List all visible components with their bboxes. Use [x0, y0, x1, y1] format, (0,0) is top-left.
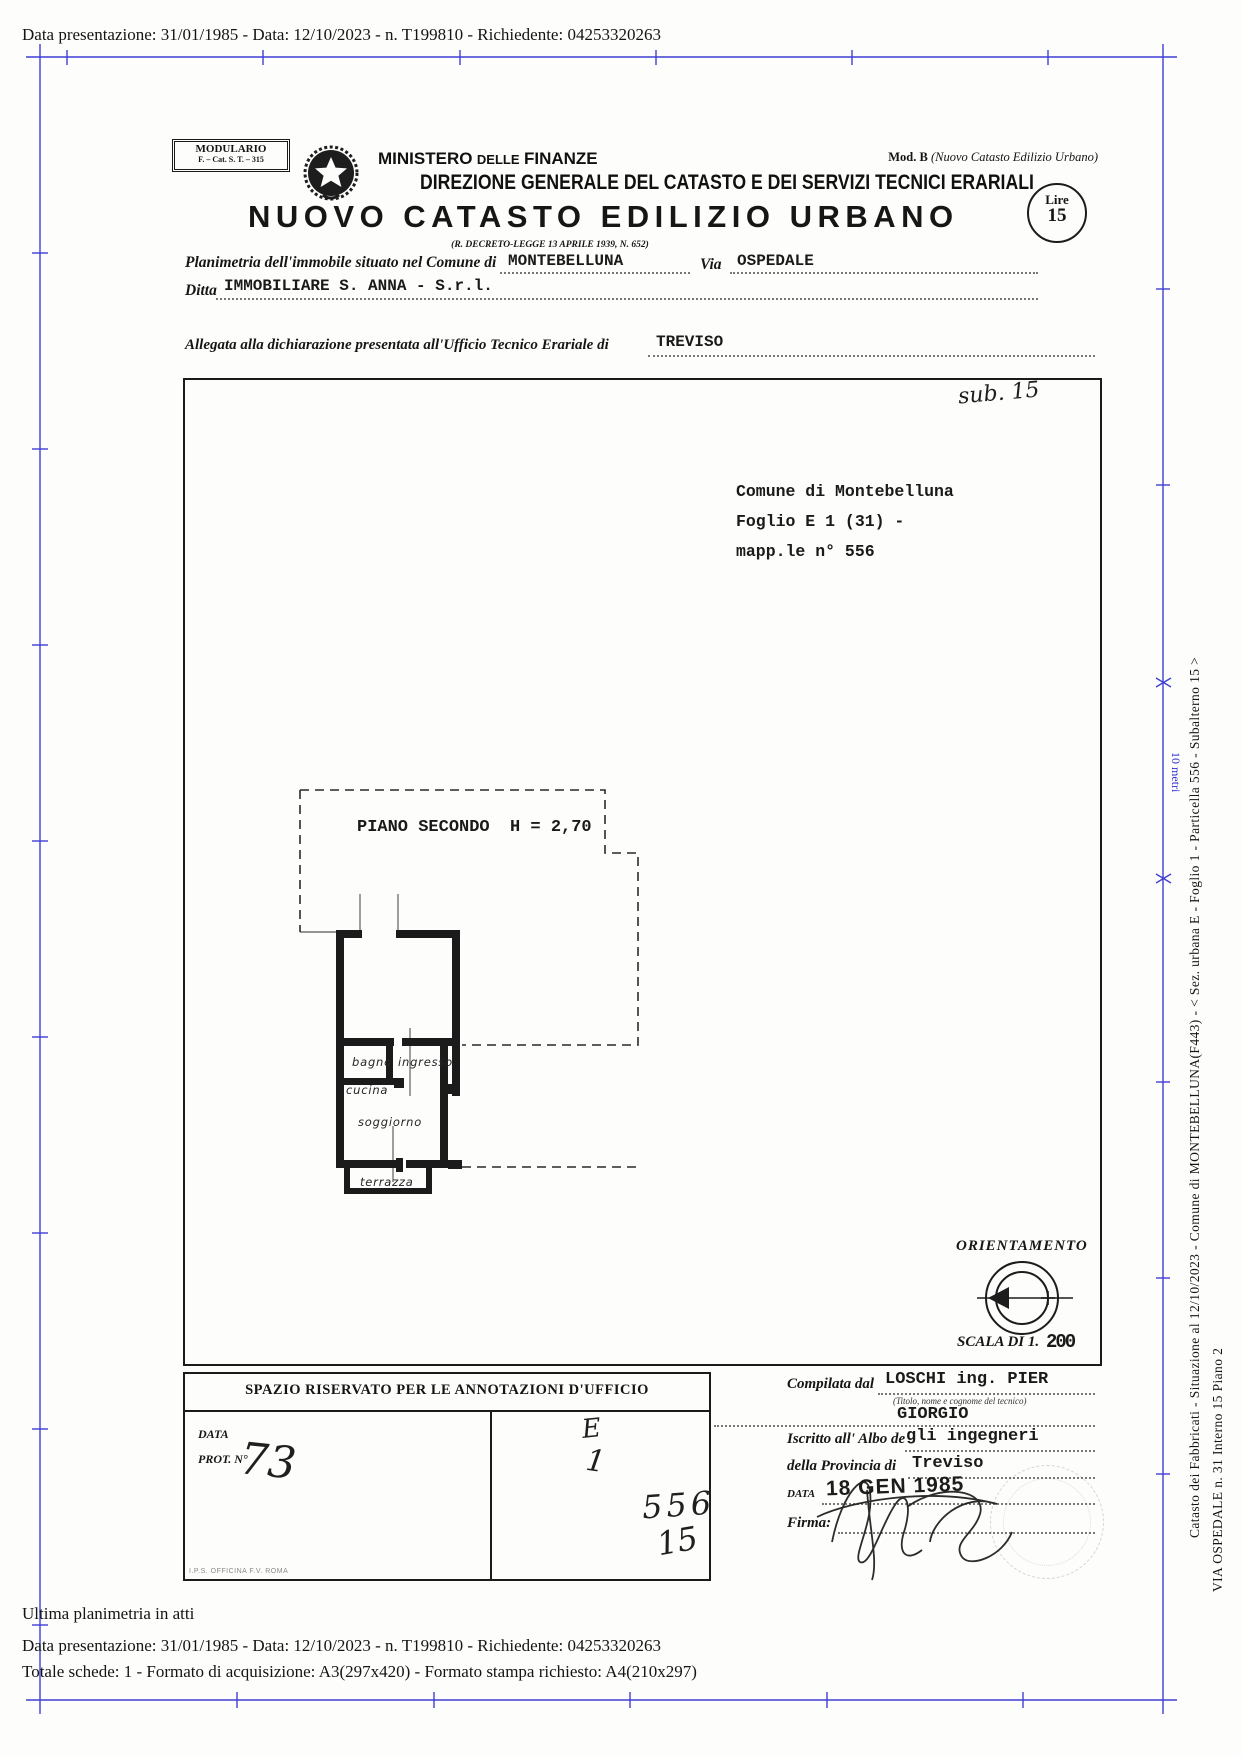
room-label-soggiorno: soggiorno [358, 1115, 422, 1129]
room-label-terrazza: terrazza [360, 1175, 414, 1189]
annotazioni-header: SPAZIO RISERVATO PER LE ANNOTAZIONI D'UF… [185, 1382, 709, 1399]
room-label-ingresso: ingresso [398, 1055, 453, 1069]
footer-line2: Data presentazione: 31/01/1985 - Data: 1… [22, 1636, 661, 1656]
officina-imprint: I.P.S. OFFICINA F.V. ROMA [189, 1568, 288, 1575]
document-title: NUOVO CATASTO EDILIZIO URBANO [248, 199, 959, 235]
annotazioni-box: SPAZIO RISERVATO PER LE ANNOTAZIONI D'UF… [183, 1372, 711, 1581]
modulario-box: MODULARIO F. – Cat. S. T. – 315 [172, 139, 290, 172]
via-underline [730, 271, 1038, 274]
round-stamp-icon [990, 1465, 1104, 1579]
erariale-value: TREVISO [656, 333, 723, 351]
tecnico-line1: LOSCHI ing. PIER [885, 1370, 1048, 1389]
mod-b-caption: Mod. B (Nuovo Catasto Edilizio Urbano) [860, 150, 1098, 165]
room-label-bagno: bagno [352, 1055, 392, 1069]
mod-b-paren: (Nuovo Catasto Edilizio Urbano) [931, 150, 1098, 164]
modulario-line2: F. – Cat. S. T. – 315 [173, 155, 289, 164]
albo-value: gli ingegneri [906, 1427, 1039, 1446]
comune-underline [500, 271, 690, 274]
scanned-cadastral-document: Data presentazione: 31/01/1985 - Data: 1… [0, 0, 1242, 1756]
side-caption-catasto: Catasto dei Fabbricati - Situazione al 1… [1187, 657, 1203, 1538]
hand-col-sezione: E [580, 1413, 602, 1445]
compilata-label: Compilata dal [787, 1376, 874, 1393]
ditta-value: IMMOBILIARE S. ANNA - S.r.l. [224, 277, 493, 295]
footer-line3: Totale schede: 1 - Formato di acquisizio… [22, 1662, 697, 1682]
hand-col-particella: 556 [641, 1483, 717, 1526]
lire-stamp-icon: Lire 15 [1027, 183, 1087, 243]
stemma-icon [299, 143, 363, 207]
tecnico-underline1 [878, 1392, 1095, 1395]
mod-b-label: Mod. B [888, 150, 928, 164]
compass-icon [975, 1258, 1075, 1340]
ministero-w2: DELLE [477, 152, 520, 167]
ministero-w3: FINANZE [524, 149, 598, 168]
lire-value: 15 [1029, 206, 1085, 226]
iscritto-label: Iscritto all' Albo de [787, 1431, 905, 1448]
ditta-underline [216, 297, 1038, 300]
orientamento-label: ORIENTAMENTO [956, 1238, 1088, 1255]
decreto-subtitle: (R. DECRETO-LEGGE 13 APRILE 1939, N. 652… [290, 240, 810, 250]
planimetria-label: Planimetria dell'immobile situato nel Co… [185, 254, 496, 272]
hand-col-foglio: 1 [584, 1443, 608, 1480]
room-label-cucina: cucina [346, 1083, 388, 1097]
scala-value: 200 [1046, 1331, 1074, 1353]
tecnico-line2: GIORGIO [897, 1405, 968, 1424]
ditta-label: Ditta [185, 282, 217, 300]
hand-col-subalterno: 15 [654, 1519, 701, 1563]
scala-label: SCALA DI 1. [957, 1334, 1039, 1351]
compilata-data-label: DATA [787, 1488, 815, 1500]
albo-underline [905, 1449, 1095, 1452]
allegata-label: Allegata alla dichiarazione presentata a… [185, 337, 609, 354]
allegata-underline [648, 354, 1095, 357]
side-caption-indirizzo: VIA OSPEDALE n. 31 Interno 15 Piano 2 [1210, 1348, 1226, 1592]
modulario-line1: MODULARIO [173, 143, 289, 155]
prot-number-handwritten: 73 [237, 1433, 298, 1490]
annotazioni-divider [490, 1410, 492, 1579]
via-value: OSPEDALE [737, 252, 814, 270]
annotazioni-header-rule [185, 1410, 709, 1412]
via-label: Via [700, 256, 722, 274]
ruler-scale-label: 10 metri [1168, 752, 1183, 792]
footer-line1: Ultima planimetria in atti [22, 1604, 194, 1624]
floor-plan-drawing: bagno ingresso cucina soggiorno terrazza [183, 378, 1098, 1362]
annot-data-label: DATA [198, 1427, 229, 1442]
direzione-title: DIREZIONE GENERALE DEL CATASTO E DEI SER… [420, 171, 1034, 195]
ministero-w1: MINISTERO [378, 149, 472, 168]
ministero-title: MINISTERO DELLE FINANZE [378, 149, 598, 169]
comune-value: MONTEBELLUNA [508, 252, 623, 270]
